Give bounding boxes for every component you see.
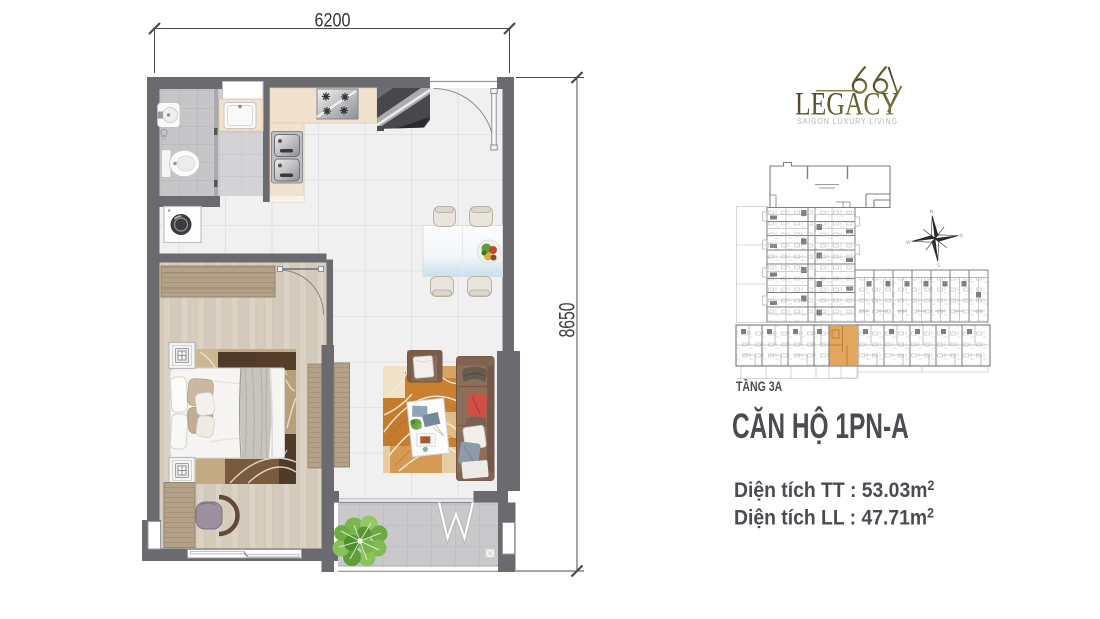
svg-text:Diện tích TT : 53.03m2: Diện tích TT : 53.03m2 xyxy=(734,477,934,502)
svg-text:TẦNG 3A: TẦNG 3A xyxy=(736,378,782,395)
svg-text:CĂN HỘ 1PN-A: CĂN HỘ 1PN-A xyxy=(732,407,909,446)
svg-text:Diện tích LL : 47.71m2: Diện tích LL : 47.71m2 xyxy=(734,505,934,530)
svg-text:6200: 6200 xyxy=(315,10,351,32)
svg-text:8650: 8650 xyxy=(555,303,580,338)
svg-text:SAIGON LUXURY LIVING: SAIGON LUXURY LIVING xyxy=(797,117,898,126)
